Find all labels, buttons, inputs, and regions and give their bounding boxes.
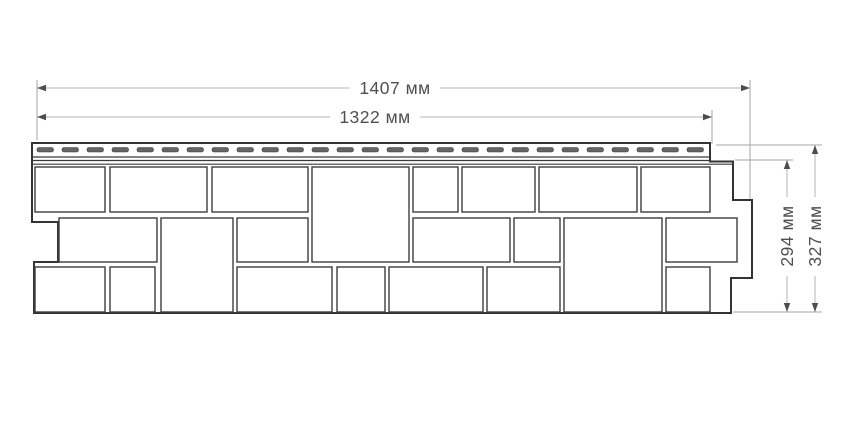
arrow-down [784, 303, 790, 312]
stone-block [212, 167, 308, 212]
dim-label-total-height: 327 мм [805, 205, 825, 266]
stone-block [161, 218, 233, 312]
stone-block [641, 167, 710, 212]
stone-block [389, 267, 483, 312]
nail-slot [112, 148, 129, 153]
nail-slot [162, 148, 179, 153]
stone-block [35, 167, 105, 212]
stone-block [237, 218, 308, 262]
stone-block [110, 167, 207, 212]
nail-slot [437, 148, 454, 153]
nail-slot [487, 148, 504, 153]
nail-slot [562, 148, 579, 153]
diagram-canvas: 1407 мм 1322 мм 294 мм 327 мм [0, 0, 850, 425]
dim-label-total-width: 1407 мм [359, 78, 430, 98]
stone-block [487, 267, 560, 312]
nail-slot [262, 148, 279, 153]
nail-slot [412, 148, 429, 153]
stone-block [312, 167, 409, 262]
nail-slot [537, 148, 554, 153]
nail-slot [687, 148, 704, 153]
arrow-up [784, 160, 790, 169]
nail-slot [237, 148, 254, 153]
stone-block [666, 218, 737, 262]
nail-slot [87, 148, 104, 153]
nail-slot [337, 148, 354, 153]
arrow-left [37, 85, 46, 91]
nail-slot [587, 148, 604, 153]
stone-block [539, 167, 637, 212]
arrow-right [703, 114, 712, 120]
nail-slot [37, 148, 54, 153]
nail-slot [362, 148, 379, 153]
nail-slot [212, 148, 229, 153]
stone-block [110, 267, 155, 312]
nail-slot [312, 148, 329, 153]
stone-block [35, 267, 105, 312]
nail-slot [137, 148, 154, 153]
dim-label-visible-height: 294 мм [777, 205, 797, 266]
stone-block [59, 218, 157, 262]
stone-block [413, 218, 510, 262]
nail-slot [612, 148, 629, 153]
stone-block [337, 267, 385, 312]
stone-block [237, 267, 332, 312]
stone-block [413, 167, 458, 212]
arrow-up [812, 145, 818, 154]
nail-slot [287, 148, 304, 153]
stone-block [564, 218, 662, 312]
arrow-down [812, 303, 818, 312]
nail-slot [387, 148, 404, 153]
nail-slot [187, 148, 204, 153]
nail-slot [637, 148, 654, 153]
stone-block [514, 218, 560, 262]
dim-label-visible-width: 1322 мм [339, 107, 410, 127]
arrow-left [37, 114, 46, 120]
stone-block [666, 267, 710, 312]
nail-slot [512, 148, 529, 153]
nail-slot [662, 148, 679, 153]
stone-block [462, 167, 535, 212]
nail-slot [462, 148, 479, 153]
facade-panel-diagram: 1407 мм 1322 мм 294 мм 327 мм [0, 0, 850, 425]
arrow-right [741, 85, 750, 91]
nail-slot [62, 148, 79, 153]
